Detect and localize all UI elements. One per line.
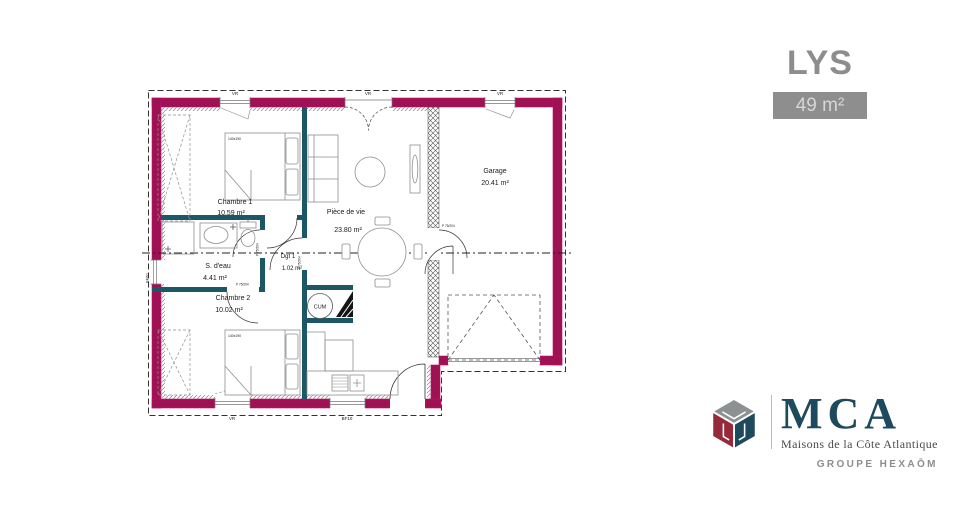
room-area-garage: 20.41 m² — [481, 180, 509, 187]
water-heater-label: CUM — [314, 305, 327, 311]
french-door-top-center: VR — [345, 91, 392, 131]
door-label: P 75/204 — [442, 224, 455, 228]
total-area-badge: 49 m² — [773, 92, 867, 119]
toilet — [240, 217, 256, 247]
page: VR VR VR BF60 VR BF10 — [0, 0, 960, 532]
sofa — [308, 135, 338, 202]
garage-door — [448, 295, 540, 364]
window-bottom-center: BF10 — [330, 397, 365, 421]
brand-tagline: Maisons de la Côte Atlantique — [781, 437, 938, 452]
electrical-panel-icon — [336, 291, 353, 317]
room-area-chambre1: 10.59 m² — [217, 210, 245, 217]
logo-divider — [771, 395, 772, 449]
window-label: VR — [229, 416, 236, 421]
window-label: VR — [365, 91, 372, 96]
floor-plan: VR VR VR BF60 VR BF10 — [148, 88, 568, 428]
room-name-degagement: Dgt 1 — [281, 254, 296, 260]
brand-group: GROUPE HEXAŌM — [781, 459, 938, 470]
water-heater: CUM — [308, 294, 333, 319]
washbasin — [200, 223, 237, 248]
coffee-table — [355, 157, 385, 187]
window-top-left: VR — [220, 91, 250, 119]
door-chambre1 — [267, 218, 297, 248]
room-name-s-deau: S. d'eau — [205, 263, 231, 270]
room-area-s-deau: 4.41 m² — [203, 275, 227, 282]
plan-title: LYS — [745, 44, 895, 83]
tv-unit — [410, 145, 420, 193]
mca-cube-icon — [706, 393, 762, 455]
window-left-side: BF60 — [145, 260, 162, 284]
room-name-garage: Garage — [483, 168, 506, 175]
room-name-piece-de-vie: Pièce de vie — [327, 209, 365, 216]
mca-logo: MCA Maisons de la Côte Atlantique GROUPE… — [706, 393, 938, 470]
room-area-chambre2: 10.02 m² — [215, 307, 243, 314]
door-label: P 75/204 — [236, 283, 249, 287]
door-label: P 75/204 — [256, 243, 260, 256]
room-area-degagement: 1.02 m² — [282, 266, 302, 272]
kitchen-counter — [307, 332, 398, 395]
brand-name: MCA — [781, 393, 938, 435]
window-garage-top: VR — [485, 91, 515, 118]
bed-chambre1: 140x190 — [225, 133, 300, 200]
window-label: VR — [232, 91, 239, 96]
bed-size-label: 140x190 — [228, 137, 241, 141]
window-label: BF60 — [145, 273, 150, 283]
logo-text: MCA Maisons de la Côte Atlantique GROUPE… — [781, 393, 938, 470]
window-label: BF10 — [342, 416, 353, 421]
room-name-chambre1: Chambre 1 — [218, 199, 253, 206]
bed-size-label: 140x190 — [228, 334, 241, 338]
room-name-chambre2: Chambre 2 — [216, 295, 251, 302]
plan-header: LYS 49 m² — [745, 44, 895, 119]
shower — [162, 222, 194, 254]
room-area-piece-de-vie: 23.80 m² — [334, 227, 362, 234]
window-label: VR — [497, 91, 504, 96]
bed-chambre2: 140x190 — [225, 330, 300, 395]
